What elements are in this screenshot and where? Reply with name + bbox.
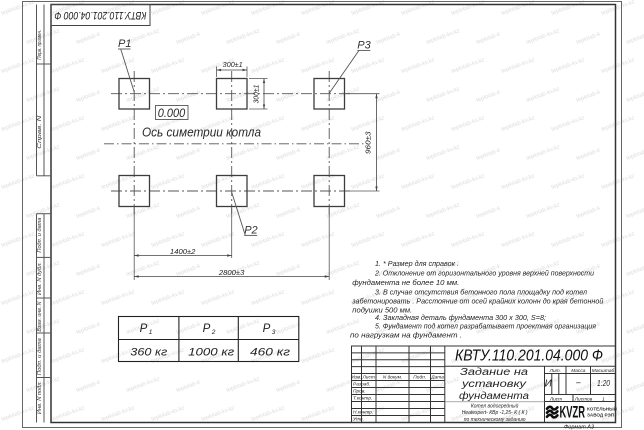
svg-text:Листов: Листов <box>574 396 593 402</box>
svg-text:Подп. и дата: Подп. и дата <box>37 218 43 253</box>
svg-text:фундамента не более 10 мм.: фундамента не более 10 мм. <box>352 278 459 287</box>
svg-text:3. В случае отсутствия бетонн: 3. В случае отсутствия бетонного пола пл… <box>375 288 588 297</box>
svg-text:Справ. N: Справ. N <box>37 116 43 149</box>
svg-text:–: – <box>575 378 581 387</box>
svg-text:Масштаб: Масштаб <box>592 368 615 374</box>
svg-text:Котел водогрейный: Котел водогрейный <box>471 403 519 410</box>
svg-text:Дата: Дата <box>430 375 444 381</box>
svg-text:1400±2: 1400±2 <box>170 249 196 256</box>
svg-text:Инв. N дубл.: Инв. N дубл. <box>37 262 43 295</box>
svg-text:Пров.: Пров. <box>353 389 366 395</box>
svg-text:Лит.: Лит. <box>549 368 561 374</box>
svg-text:Инв. N подл.: Инв. N подл. <box>37 381 43 414</box>
svg-text:Разраб.: Разраб. <box>353 382 370 388</box>
svg-text:360 кг: 360 кг <box>130 347 168 359</box>
svg-text:ЗАВОД РЭП: ЗАВОД РЭП <box>587 413 614 418</box>
svg-text:1:20: 1:20 <box>597 379 610 388</box>
svg-text:0.000: 0.000 <box>158 106 186 120</box>
svg-text:N докум.: N докум. <box>383 375 402 381</box>
svg-text:Подп. и дата: Подп. и дата <box>37 338 43 375</box>
svg-text:Формат А3: Формат А3 <box>564 424 595 430</box>
svg-text:Лист: Лист <box>362 375 375 381</box>
svg-text:1000 кг: 1000 кг <box>188 347 235 359</box>
svg-text:КОТЕЛЬНЫЙ: КОТЕЛЬНЫЙ <box>587 405 617 412</box>
svg-text:Масса: Масса <box>571 368 586 374</box>
svg-text:установку: установку <box>461 379 528 390</box>
svg-text:по нагрузкам на фундамент .: по нагрузкам на фундамент . <box>350 330 462 339</box>
svg-text:Лист: Лист <box>549 396 562 402</box>
svg-text:Взам. инв. N: Взам. инв. N <box>37 302 43 332</box>
svg-text:Задание на: Задание на <box>460 367 529 378</box>
svg-text:КВТУ.110.201.04.000 Ф: КВТУ.110.201.04.000 Ф <box>54 9 146 21</box>
svg-text:300±1: 300±1 <box>254 84 261 103</box>
svg-text:КВТУ.110.201.04.000 Ф: КВТУ.110.201.04.000 Ф <box>455 347 603 364</box>
svg-text:фундамента: фундамента <box>459 390 529 402</box>
svg-text:Изм.: Изм. <box>351 375 361 381</box>
svg-text:забетонировать . Расстояние от: забетонировать . Расстояние от осей край… <box>351 297 604 306</box>
svg-text:P1: P1 <box>118 38 131 50</box>
svg-text:960±3: 960±3 <box>366 131 373 154</box>
svg-text:И: И <box>545 379 553 390</box>
svg-text:KVZR: KVZR <box>560 404 586 422</box>
svg-text:Т.контр.: Т.контр. <box>353 396 372 402</box>
svg-text:2800±3: 2800±3 <box>218 270 245 277</box>
svg-text:1: 1 <box>602 396 605 402</box>
svg-text:по техническому заданию: по техническому заданию <box>464 417 526 423</box>
svg-text:Утв.: Утв. <box>353 417 364 423</box>
svg-text:Перв. примен.: Перв. примен. <box>37 30 43 60</box>
svg-text:5. Фундамент под котел разраб: 5. Фундамент под котел разрабатывает про… <box>375 321 596 330</box>
svg-text:Heatexpert- КВр -1,25- К ( К ): Heatexpert- КВр -1,25- К ( К ) <box>462 410 528 416</box>
svg-text:460 кг: 460 кг <box>250 347 291 359</box>
svg-text:Ось симетрии котла: Ось симетрии котла <box>142 126 261 140</box>
svg-text:P3: P3 <box>357 40 371 52</box>
svg-text:300±1: 300±1 <box>223 62 243 69</box>
svg-text:Подп.: Подп. <box>413 375 426 381</box>
svg-text:P2: P2 <box>244 225 257 237</box>
svg-text:1. * Размер для справок .: 1. * Размер для справок . <box>375 259 459 268</box>
svg-text:2. Отклонение от горизонтальн: 2. Отклонение от горизонтального уровня … <box>374 268 595 277</box>
svg-text:Н.контр.: Н.контр. <box>353 410 373 416</box>
